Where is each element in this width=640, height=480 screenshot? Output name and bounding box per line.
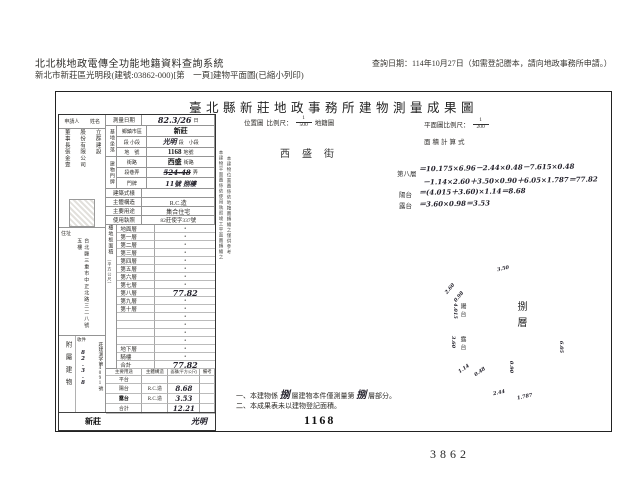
annex-cell: 3.53 — [168, 394, 200, 404]
receipt-label: 收件 — [77, 337, 86, 343]
applicant-seal — [69, 199, 95, 226]
usage-label: 主要用途 — [106, 207, 142, 216]
side-note: 本建物位置圖係依地籍圖轉繪之僅供參考 — [226, 156, 232, 402]
page-number-stamp: 3862 — [430, 447, 470, 462]
floor-row: 地下層• — [117, 345, 215, 353]
applicant-name: 股份有限公司 — [78, 129, 86, 197]
annex-cell: 陽台 — [106, 384, 142, 394]
document-subtitle: 新北市新莊區光明段(建號:03862-000)[第 一頁]建物平面圖(已縮小列印… — [35, 69, 304, 81]
township-stamp: 新莊 — [174, 126, 188, 136]
dimension-label: 4.015 — [452, 303, 458, 319]
area-calc-title: 面積計算式 — [424, 136, 467, 146]
annex-cell: 8.68 — [168, 384, 200, 394]
note-floor-hw: 捌 — [280, 390, 290, 401]
annex-header-use: 主要用途 — [106, 369, 142, 376]
receipt-date: 82.3.8 — [80, 350, 86, 400]
floor-area-value: • — [155, 305, 215, 313]
floor-area-value: • — [155, 313, 215, 321]
calc-expression: ＝10.175×6.96－2.44×0.48－7.615×0.48 — [419, 162, 575, 175]
survey-table: 申請人 姓名 立群建設 股份有限公司 董事長張金壹 住址 台北縣三重市中正北路 — [58, 114, 216, 431]
survey-date-suffix: 日 — [193, 117, 198, 124]
side-note: 本建物平面圖係依使用執照竣工平面圖轉繪之 — [218, 150, 224, 406]
lane-value: 524-48 — [164, 168, 191, 177]
note-text: 一、本建物係 — [236, 392, 278, 400]
floor-row: • — [117, 313, 215, 321]
annex-cell — [142, 376, 168, 384]
floor-row: 騎樓• — [117, 353, 215, 361]
annex-row: 陽台R.C.造8.68 — [106, 384, 215, 394]
applicant-role-label: 申請人 — [64, 118, 79, 125]
receipt-number: 莊建測字第4091號 — [96, 342, 103, 408]
location-map-label: 位置圖 — [244, 117, 264, 127]
street-name-label: 西盛街 — [280, 145, 346, 160]
lot-number-stamp: 1168 — [304, 413, 335, 428]
terrace-label: 露台 — [458, 336, 467, 360]
floor-area-value: • — [155, 249, 215, 257]
calc-label: 露台 — [399, 200, 412, 210]
floor-label: 第十層 — [117, 305, 155, 313]
annex-table: 主要用途 主體構造 面積(平方公尺) 備考 平台陽台R.C.造8.68露台R.C… — [106, 369, 215, 413]
floor-area-value: • — [155, 345, 215, 353]
street-suffix: 街路 — [184, 159, 194, 166]
note-text: 層部分。 — [368, 392, 396, 400]
calc-expression: ＝3.60×0.98＝3.53 — [419, 198, 490, 209]
applicant-name-label: 姓名 — [90, 118, 100, 125]
location-scale-fraction: 1 500 — [296, 116, 312, 128]
survey-date-label: 測量日期 — [106, 115, 142, 126]
dimension-label: 1.14 — [457, 363, 470, 375]
floor-label: 合計 — [117, 361, 155, 369]
floor-area-value: 77.82 — [155, 361, 215, 369]
township-label: 鄉鎮市區 — [117, 126, 147, 137]
door-number-value: 11號 捌樓 — [165, 178, 196, 188]
annex-header-area: 面積(平方公尺) — [168, 369, 200, 376]
section-label: 段 小段 — [117, 137, 147, 148]
street-label: 街路 — [117, 157, 147, 168]
floor-area-value: • — [155, 233, 215, 241]
section-stamp: 光明 — [163, 137, 177, 147]
scale-denominator: 200 — [473, 124, 489, 131]
cadastral-map-label: 地籍圖 — [315, 117, 335, 127]
dimension-label: 2.60 — [444, 282, 456, 295]
floors-table: 樓地板面積 （平方公尺） 地面層•第一層•第二層•第三層•第四層•第五層•第六層… — [106, 225, 215, 369]
location-scale: 位置圖 比例尺： 1 500 地籍圖 — [244, 116, 334, 128]
site-group-label: 基地坐落 — [108, 129, 115, 153]
annex-row: 平台 — [106, 376, 215, 384]
annex-cell — [200, 394, 215, 404]
query-date: 查詢日期：114年10月27日（如需登記謄本，請向地政事務所申請。） — [372, 58, 612, 69]
annex-side-label: 附屬建物 — [62, 341, 72, 407]
survey-info: 測量日期 82.3/26 日 基地坐落 鄉鎮市區 新莊 — [106, 115, 215, 412]
balcony-label: 陽台 — [458, 303, 467, 329]
note-line-1: 一、本建物係 捌 層建物本件僅測量第 捌 層部分。 — [236, 386, 396, 401]
applicant-strip: 申請人 姓名 立群建設 股份有限公司 董事長張金壹 住址 台北縣三重市中正北路 — [59, 115, 106, 412]
scale-denominator: 500 — [296, 122, 312, 129]
dimension-label: 0.98 — [453, 290, 465, 303]
note-line-2: 二、本成果表未以建物登記面積。 — [236, 401, 341, 411]
annex-cell: 露台 — [106, 394, 142, 404]
dimension-label: 0.90 — [508, 361, 514, 373]
floor-label — [117, 321, 155, 329]
plan-scale-fraction: 1 200 — [473, 118, 489, 130]
usage-value: 集合住宅 — [166, 207, 190, 216]
floor-area-value: • — [155, 225, 215, 233]
applicant-address: 台北縣三重市中正北路三二八號五樓 — [75, 238, 89, 334]
style-label: 建築式樣 — [106, 189, 142, 198]
license-value: 82莊使字337號 — [160, 216, 196, 224]
dimension-label: 2.44 — [493, 389, 506, 397]
floor-row: 合計77.82 — [117, 361, 215, 369]
annex-cell — [200, 376, 215, 384]
floor-area-value: • — [155, 257, 215, 265]
plan-scale-label: 平面圖比例尺： — [424, 119, 470, 129]
survey-date-value: 82.3/26 — [158, 115, 192, 125]
floor-area-value: • — [155, 337, 215, 345]
applicant-name: 立群建設 — [94, 129, 102, 197]
dimension-label: 0.48 — [473, 366, 486, 378]
scale-label: 比例尺： — [267, 117, 293, 127]
annex-header-note: 備考 — [200, 369, 215, 376]
street-stamp: 西盛 — [168, 157, 182, 167]
address-label: 住址 — [61, 230, 71, 237]
floor-area-value: 77.82 — [155, 289, 215, 297]
lane-suffix: 弄 — [193, 169, 198, 176]
survey-result-sheet: 臺北縣新莊地政事務所建物測量成果圖 申請人 姓名 立群建設 股份有限公司 董事長… — [55, 91, 612, 432]
annex-row: 露台R.C.造3.53 — [106, 394, 215, 404]
annex-cell — [200, 384, 215, 394]
floor8-label: 捌層 — [513, 301, 528, 345]
floor-area-value: • — [155, 329, 215, 337]
note-text: 層建物本件僅測量第 — [292, 392, 355, 400]
floor-row: • — [117, 329, 215, 337]
floor-label — [117, 329, 155, 337]
note-floor-hw: 捌 — [356, 390, 366, 401]
floor-area-value: • — [155, 265, 215, 273]
floor-row: • — [117, 321, 215, 329]
door-group-label: 建物門牌 — [108, 161, 115, 185]
scanned-document-viewer: 北北桃地政電傳全功能地籍資料查詢系統 新北市新莊區光明段(建號:03862-00… — [0, 0, 640, 480]
floors-side-label: 樓地板面積 — [106, 225, 113, 255]
calc-label: 第八層 — [397, 168, 417, 178]
calc-expression: ＝(4.015＋3.60)×1.14＝8.68 — [419, 186, 526, 198]
floors-unit-label: （平方公尺） — [106, 257, 112, 287]
annex-cell: R.C.造 — [142, 394, 168, 404]
table-footer: 新莊 光明 — [59, 412, 215, 430]
annex-cell — [168, 376, 200, 384]
annex-cell: 平台 — [106, 376, 142, 384]
lane-label: 段巷弄 — [117, 168, 147, 178]
structure-value: R.C.造 — [170, 198, 187, 207]
floor-area-value: • — [155, 273, 215, 281]
annex-header-structure: 主體構造 — [142, 369, 168, 376]
dimension-label: 3.60 — [450, 336, 456, 348]
floor-area-value: • — [155, 297, 215, 305]
floor-area-value: • — [155, 241, 215, 249]
footer-township-stamp: 新莊 — [85, 416, 101, 427]
dimension-label: 1.787 — [517, 392, 534, 401]
annex-cell: R.C.造 — [142, 384, 168, 394]
lot-number-value: 1168 — [168, 148, 182, 156]
system-title: 北北桃地政電傳全功能地籍資料查詢系統 — [35, 55, 224, 70]
floor-area-value: • — [155, 321, 215, 329]
section-suffix: 段 小段 — [179, 139, 199, 146]
footer-section-stamp: 光明 — [191, 416, 207, 427]
structure-label: 主體構造 — [106, 198, 142, 207]
plan-scale: 平面圖比例尺： 1 200 — [424, 118, 489, 130]
floor-row: 第十層• — [117, 305, 215, 313]
lot-suffix: 地號 — [184, 149, 194, 156]
applicant-representative: 董事長張金壹 — [63, 129, 71, 197]
dimension-label: 3.50 — [497, 265, 510, 273]
lot-label: 地 號 — [117, 148, 147, 157]
floor-label — [117, 313, 155, 321]
dimension-label: 6.05 — [558, 341, 564, 353]
door-number-label: 門牌 — [117, 178, 147, 189]
calc-label: 陽台 — [399, 189, 412, 199]
